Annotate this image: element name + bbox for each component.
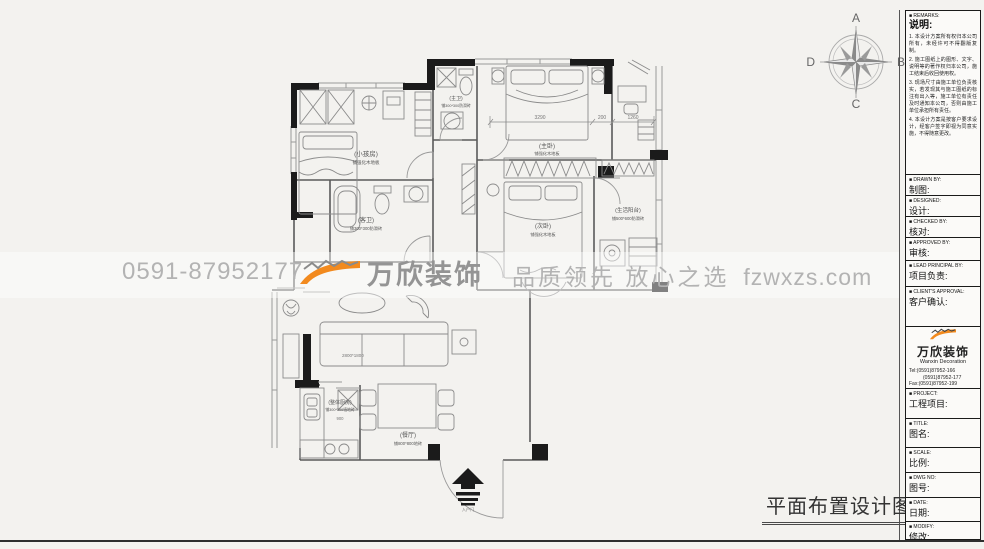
checked-by-zh: 核对: xyxy=(909,226,977,238)
dim-sofa: 2800*1800 xyxy=(342,353,364,358)
drawn-by-zh: 制图: xyxy=(909,184,977,196)
approved-by-section: ■ APPROVED BY: 审核: xyxy=(906,238,980,261)
approved-by-en: ■ APPROVED BY: xyxy=(909,240,977,246)
modify-zh: 修改: xyxy=(909,531,977,539)
dwg-no-zh: 图号: xyxy=(909,482,977,494)
sheet-bottom-border xyxy=(0,540,984,542)
designed-en: ■ DESIGNED: xyxy=(909,198,977,204)
remarks-header-zh: 说明: xyxy=(909,20,977,32)
project-zh: 工程项目: xyxy=(909,398,977,410)
lead-principal-zh: 项目负责: xyxy=(909,270,977,282)
scale-en: ■ SCALE: xyxy=(909,450,977,456)
titleblock-separator-line xyxy=(899,10,900,540)
company-name-cn: 万欣装饰 xyxy=(909,346,977,359)
label-kitchen: (整体厨房) xyxy=(328,399,352,406)
watermark-site: fzwxzs.com xyxy=(743,264,872,290)
dimension-labels: 3290 200 1260 2800*1800 900 入户门 xyxy=(337,115,639,513)
dim-master-width: 3290 xyxy=(534,115,545,121)
drawn-by-en: ■ DRAWN BY: xyxy=(909,177,977,183)
lead-principal-en: ■ LEAD PRINCIPAL BY: xyxy=(909,263,977,269)
label-service-balcony-floor: 铺500*600防滑砖 xyxy=(612,215,644,222)
label-master-room: (主卧) xyxy=(539,142,555,150)
remarks-item: 3. 现场尺寸由施工单位负责核实，若发现其与施工图纸的标注有出入等，施工单位有责… xyxy=(909,80,977,115)
watermark-brand-text: 万欣装饰 xyxy=(367,253,483,292)
watermark-slogan-text: 品质领先 放心之选 xyxy=(512,264,729,290)
designed-zh: 设计: xyxy=(909,205,977,217)
project-en: ■ PROJECT: xyxy=(909,391,977,397)
compass-west-label: D xyxy=(806,55,815,69)
label-master-floor: 铺强化木地板 xyxy=(534,150,560,157)
drawn-by-section: ■ DRAWN BY: 制图: xyxy=(906,175,980,196)
remarks-item: 1. 本设计方案所有权归本公司所有，未经许可不得翻版复制。 xyxy=(909,34,977,55)
watermark-slogan: 品质领先 放心之选fzwxzs.com xyxy=(512,258,872,292)
label-dining: (餐厅) xyxy=(400,431,416,439)
company-logo-section: 万欣装饰 Wanxin Decoration Tel:(0591)87952-1… xyxy=(906,327,980,389)
desk-nook-furniture xyxy=(618,60,654,140)
kitchen-fixtures xyxy=(300,388,358,458)
scale-zh: 比例: xyxy=(909,457,977,469)
dwg-no-en: ■ DWG NO: xyxy=(909,475,977,481)
project-section: ■ PROJECT: 工程项目: xyxy=(906,389,980,419)
dim-wall: 200 xyxy=(598,115,607,121)
remarks-section: ■ REMARKS: 说明: 1. 本设计方案所有权归本公司所有，未经许可不得翻… xyxy=(906,11,980,175)
entry-label: 入户门 xyxy=(462,506,475,513)
company-logo-swoosh-icon xyxy=(921,328,965,341)
approved-by-zh: 审核: xyxy=(909,247,977,259)
watermark-phone: 0591-87952177 xyxy=(122,258,303,286)
label-kids-floor: 铺强化木地板 xyxy=(353,159,380,166)
label-master-bath: (主卫) xyxy=(449,95,463,102)
dwg-no-section: ■ DWG NO: 图号: xyxy=(906,473,980,498)
date-zh: 日期: xyxy=(909,507,977,519)
label-second-room: (次卧) xyxy=(535,222,551,230)
label-guest-bath-floor: 铺300*300防滑砖 xyxy=(350,225,382,232)
label-master-bath-floor: 铺300*300防滑砖 xyxy=(441,103,471,108)
label-kitchen-floor: 铺300*300墙地砖 xyxy=(325,407,355,412)
remarks-header-en: ■ REMARKS: xyxy=(909,13,977,19)
modify-section: ■ MODIFY: 修改: xyxy=(906,522,980,539)
label-dining-floor: 铺800*800地砖 xyxy=(394,440,422,447)
client-approval-en: ■ CLIENT'S APPROVAL: xyxy=(909,289,977,295)
date-en: ■ DATE: xyxy=(909,500,977,506)
scale-section: ■ SCALE: 比例: xyxy=(906,448,980,473)
title-block: ■ REMARKS: 说明: 1. 本设计方案所有权归本公司所有，未经许可不得翻… xyxy=(905,10,981,540)
watermark-brand: 万欣装饰 xyxy=(298,253,483,292)
modify-en: ■ MODIFY: xyxy=(909,524,977,530)
designed-section: ■ DESIGNED: 设计: xyxy=(906,196,980,217)
title-zh: 图名: xyxy=(909,428,977,440)
remarks-item: 4. 本设计方案是按客户要求设计，经客户签字即视为同意实施，不得随意更改。 xyxy=(909,117,977,138)
lead-principal-section: ■ LEAD PRINCIPAL BY: 项目负责: xyxy=(906,261,980,287)
dim-kitchen: 900 xyxy=(337,416,345,421)
label-second-floor: 铺强化木地板 xyxy=(530,231,556,238)
brand-swoosh-icon xyxy=(298,258,362,288)
compass-rose-icon: A B C D xyxy=(806,11,905,111)
living-room-furniture xyxy=(283,293,476,378)
label-service-balcony: (生活阳台) xyxy=(615,206,641,214)
drawing-title: 平面布置设计图 xyxy=(762,490,917,525)
label-guest-bath: (客卫) xyxy=(358,216,374,224)
dim-nook: 1260 xyxy=(627,115,638,121)
client-approval-zh: 客户确认: xyxy=(909,296,977,308)
company-name-en: Wanxin Decoration xyxy=(909,359,977,366)
checked-by-en: ■ CHECKED BY: xyxy=(909,219,977,225)
client-approval-section: ■ CLIENT'S APPROVAL: 客户确认: xyxy=(906,287,980,327)
date-section: ■ DATE: 日期: xyxy=(906,498,980,522)
title-en: ■ TITLE: xyxy=(909,421,977,427)
title-section: ■ TITLE: 图名: xyxy=(906,419,980,448)
remarks-item: 2. 施工图纸上的图形、文字、说明等的著作权归本公司，施工结束后收回使用权。 xyxy=(909,57,977,78)
compass-north-label: A xyxy=(852,11,860,25)
corridor-cabinet xyxy=(462,164,475,214)
dining-furniture xyxy=(360,384,454,430)
checked-by-section: ■ CHECKED BY: 核对: xyxy=(906,217,980,238)
label-kids-room: (小孩房) xyxy=(354,149,378,158)
entrance-arrow-icon xyxy=(452,468,484,506)
compass-south-label: C xyxy=(852,97,861,111)
